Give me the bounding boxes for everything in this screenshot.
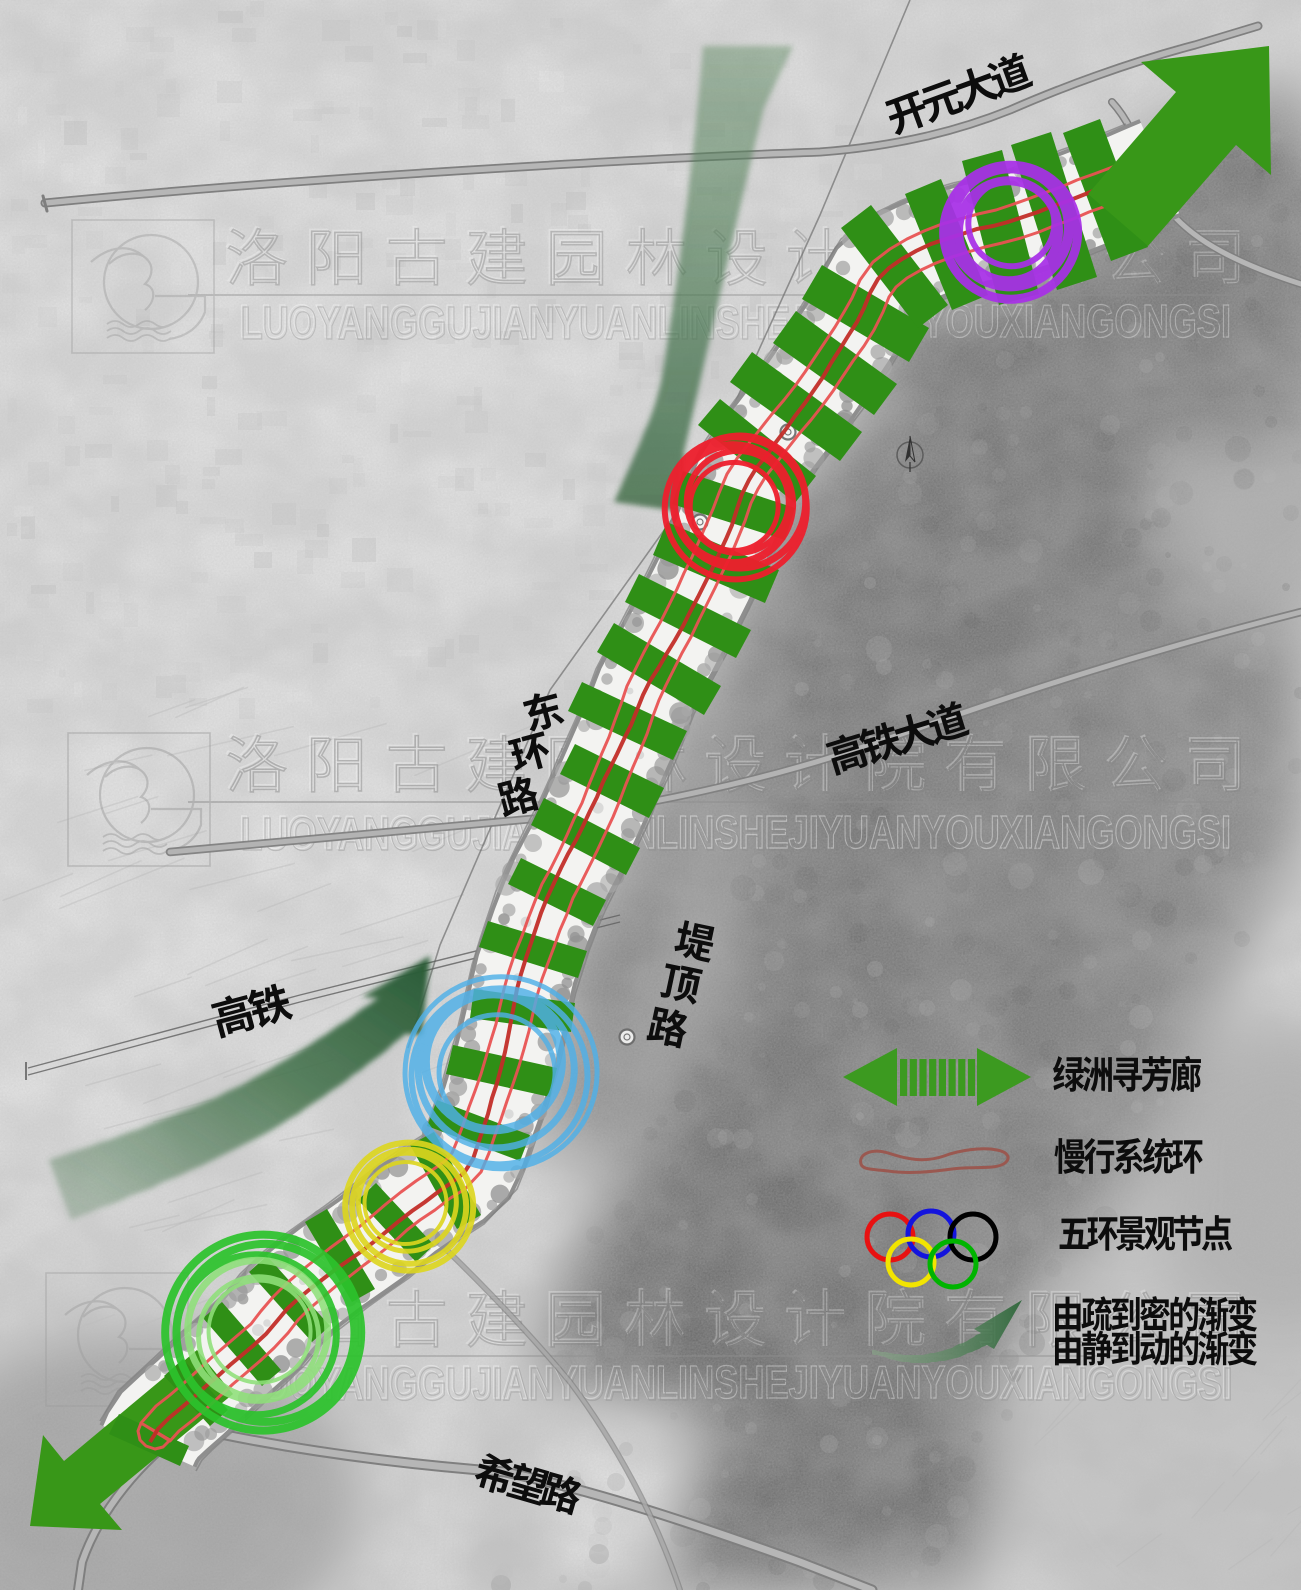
svg-text:LUOYANGGUJIANYUANLINSHEJIYUANY: LUOYANGGUJIANYUANLINSHEJIYUANYOUXIANGONG… (241, 297, 1233, 349)
svg-text:LUOYANGGUJIANYUANLINSHEJIYUANY: LUOYANGGUJIANYUANLINSHEJIYUANYOUXIANGONG… (241, 1358, 1233, 1410)
